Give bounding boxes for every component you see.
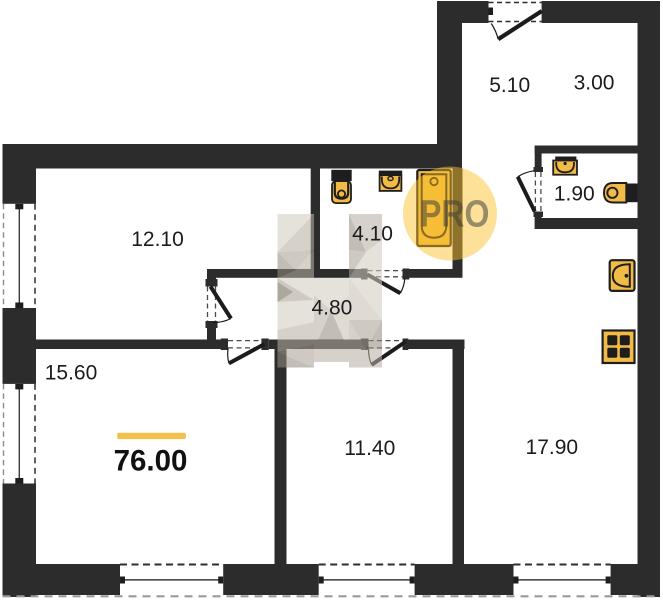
svg-text:4.80: 4.80 — [311, 297, 352, 320]
svg-text:76.00: 76.00 — [114, 445, 188, 478]
svg-text:3.00: 3.00 — [574, 71, 615, 94]
svg-text:17.90: 17.90 — [526, 436, 579, 459]
svg-text:5.10: 5.10 — [489, 74, 530, 97]
svg-text:PRO: PRO — [420, 194, 490, 236]
svg-text:11.40: 11.40 — [344, 437, 395, 460]
svg-text:15.60: 15.60 — [45, 362, 98, 385]
svg-text:1.90: 1.90 — [554, 182, 595, 205]
svg-text:12.10: 12.10 — [131, 228, 184, 251]
svg-text:4.10: 4.10 — [352, 222, 393, 245]
